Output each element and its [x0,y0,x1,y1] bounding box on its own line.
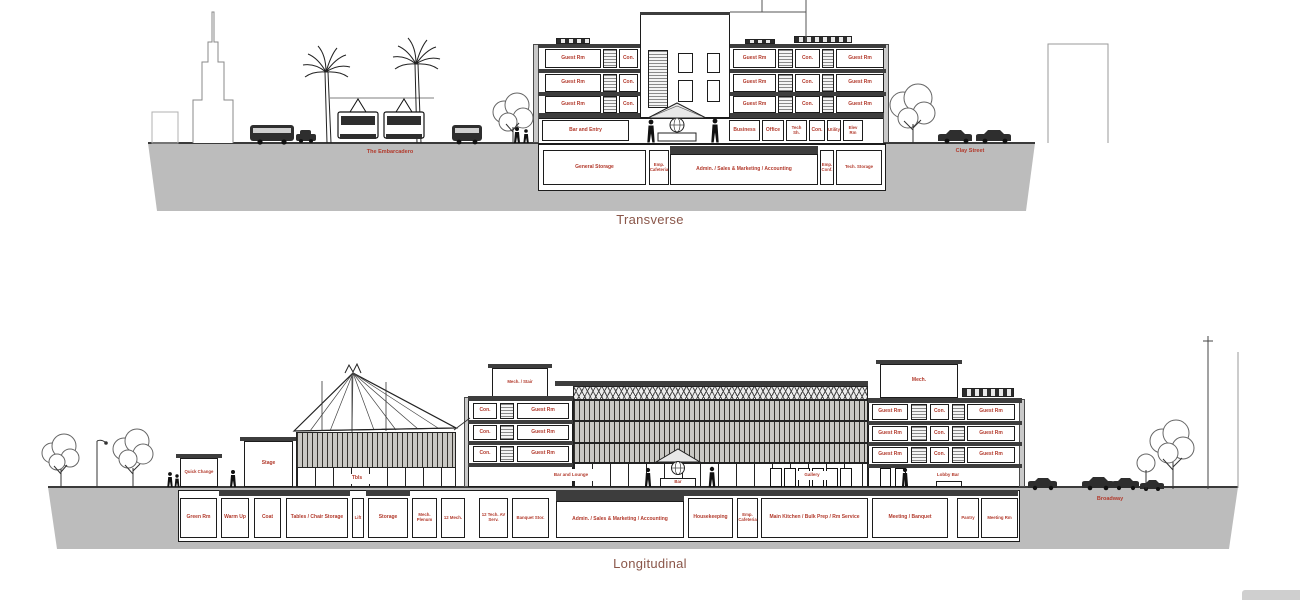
t-rw-slab2 [730,69,886,73]
t-tower-window-2 [707,53,720,73]
l-rt-f3-guest-r: Guest Rm [967,404,1015,420]
l-rt-door-1 [880,468,891,487]
t-lw-f1-guest: Guest Rm [545,96,601,113]
t-rw-f1-guest-r: Guest Rm [836,96,884,113]
l-rt-door-2 [895,468,906,487]
l-atrium-floorline-1 [573,442,868,444]
room-12-tech-av: 12 Tech. AV Serv. [479,498,508,538]
l-gallery-door-6 [840,468,852,487]
room-emp-cafeteria-t: Emp. Cafeteria [649,150,669,185]
tree-icon [1137,454,1155,489]
room-12-mech: 12 Mech. [441,498,465,538]
room-tables-chair-storage: Tables / Chair Storage [286,498,348,538]
t-tower-window-3 [678,80,693,102]
t-rw-f1-shaft-r [822,96,834,113]
room-warm-up: Warm Up [221,498,249,538]
l-rt-f1-con: Con. [930,447,949,463]
t-lw-f3-shaft [603,49,617,68]
l-lt-slab1 [468,441,573,445]
t-rw-f2-shaft-l [778,74,793,92]
l-lt-parapet [468,396,573,401]
palm-tree-icon [393,38,440,143]
l-rt-f2-guest-r: Guest Rm [967,426,1015,441]
t-tower-parapet [640,12,730,15]
t-rw-f1-shaft-l [778,96,793,113]
t-lw-f1-shaft [603,96,617,113]
l-rt-f1-shaft-l [911,447,927,463]
l-rt-f1-shaft-r [952,447,965,463]
t-lw-f2-guest: Guest Rm [545,74,601,92]
adjacent-building-icon [1048,44,1108,143]
room-utility: Utility [827,120,841,141]
room-main-kitchen: Main Kitchen / Bulk Prep / Rm Service [761,498,868,538]
l-rt-roof-mech [962,388,1014,397]
t-tower-window-1 [678,53,693,73]
room-emp-conf: Emp. Conf. [820,150,834,185]
room-green-rm: Green Rm [180,498,217,538]
l-rt-f2-shaft-l [911,426,927,441]
t-lw-f2-con: Con. [619,74,638,92]
room-emp-cafeteria-l: Emp. Cafeteria [737,498,758,538]
l-rt-slab1 [868,442,1022,446]
t-rw-f2-guest-r: Guest Rm [836,74,884,92]
room-elev-rm: Elev Rm [843,120,863,141]
l-rt-f2-con: Con. [930,426,949,441]
l-lt-f3-shaft [500,403,514,419]
t-lw-slab2 [538,69,640,73]
room-mech-plenum: Mech. Plenum [412,498,437,538]
room-business: Business [729,120,760,141]
t-rw-f2-con: Con. [795,74,820,92]
l-rt-f3-shaft-l [911,404,927,420]
l-gallery-door-1 [770,468,782,487]
t-lw-f1-con: Con. [619,96,638,113]
l-rt-f2-shaft-r [952,426,965,441]
t-lw-f2-shaft [603,74,617,92]
street-label-broadway: Broadway [1078,495,1142,503]
room-lift: Lift [352,498,364,538]
t-rw-f3-shaft-l [778,49,793,68]
l-rt-parapet [868,398,1022,403]
t-tower-window-4 [707,80,720,102]
tree-icon [1150,420,1194,489]
t-rw-roof-mech2 [794,36,852,43]
t-lw-roof [538,44,640,48]
utility-pole-icon [1203,336,1213,489]
l-lt-f2-shaft [500,425,514,440]
room-housekeeping: Housekeeping [688,498,733,538]
tree-icon [42,434,79,487]
pedestrian-icon [514,127,529,143]
l-rt-f3-con: Con. [930,404,949,420]
l-rt-f3-shaft-r [952,404,965,420]
t-rw-f3-guest-l: Guest Rm [733,49,776,68]
l-lt-f1-shaft [500,446,514,462]
room-con-ground: Con. [809,120,825,141]
l-tbls-label: Tbls [342,474,372,484]
l-gallery-door-2 [784,468,796,487]
street-label-embarcadero: The Embarcadero [338,148,442,156]
l-rt-f2-guest-l: Guest Rm [872,426,908,441]
l-gallery-label: Gallery [797,471,827,480]
sheet-corner-artifact [1242,590,1300,600]
l-lt-f3-guest: Guest Rm [517,403,569,419]
room-office: Office [762,120,784,141]
l-lobby-bar-counter [936,481,962,487]
t-rw-f2-guest-l: Guest Rm [733,74,776,92]
tree-icon [493,93,533,143]
l-bar-label: Bar [660,479,696,486]
street-light-icon [97,440,107,487]
room-coat: Coat [254,498,281,538]
room-banquet-stor: Banquet Stor. [512,498,549,538]
l-rt-f3-guest-l: Guest Rm [872,404,908,420]
room-bar-and-entry: Bar and Entry [542,120,629,141]
room-mech: Mech. [880,364,958,398]
room-tech-sh: Tech Sh. [786,120,807,141]
room-quick-change: Quick Change [180,458,218,487]
room-meeting-rm: Meeting Rm [981,498,1018,538]
street-label-clay: Clay Street [928,147,1012,155]
l-slab-left2 [366,490,410,496]
t-rw-f1-guest-l: Guest Rm [733,96,776,113]
t-rw-f1-con: Con. [795,96,820,113]
t-lw-roof-mech [556,38,590,44]
t-rw-f3-shaft-r [822,49,834,68]
t-rw-f2-shaft-r [822,74,834,92]
l-lt-slab0 [468,463,573,467]
l-tent-glazing [296,432,456,468]
t-rw-roof-mech1 [745,39,775,44]
room-admin-t: Admin. / Sales & Marketing / Accounting [670,154,818,185]
room-tech-storage: Tech. Storage [836,150,882,185]
l-rt-slab2 [868,421,1022,425]
l-atrium-glass [573,400,868,463]
t-lw-f3-guest: Guest Rm [545,49,601,68]
l-lt-f3-con: Con. [473,403,497,419]
l-lt-f1-con: Con. [473,446,497,462]
room-stage: Stage [244,441,293,487]
transverse-title: Transverse [590,212,710,227]
l-admin-crawlspace [556,492,684,501]
l-rt-slab0 [868,464,1022,468]
tram-icon [384,99,424,139]
tree-icon [113,429,153,487]
room-storage: Storage [368,498,408,538]
t-lw-f3-con: Con. [619,49,638,68]
room-meeting-banquet: Meeting / Banquet [872,498,948,538]
palm-tree-icon [303,46,350,143]
tent-roof-icon [294,364,470,432]
longitudinal-title: Longitudinal [590,556,710,571]
t-tower-stair-shaft [648,50,668,108]
l-gallery-door-5 [826,468,838,487]
tram-icon [338,99,378,139]
l-slab-left1 [219,490,350,496]
t-basement-crawlspace [670,146,818,154]
t-rw-f3-guest-r: Guest Rm [836,49,884,68]
l-rt-f1-guest-r: Guest Rm [967,447,1015,463]
tree-icon [890,84,935,143]
room-admin-l: Admin. / Sales & Marketing / Accounting [556,501,684,538]
skyline-tower-icon [152,12,233,143]
l-lt-f2-guest: Guest Rm [517,425,569,440]
t-entry-bar-label: Bar [663,134,691,141]
l-atrium-floorline-2 [573,420,868,422]
l-lt-f2-con: Con. [473,425,497,440]
l-rt-f1-guest-l: Guest Rm [872,447,908,463]
l-lt-slab2 [468,420,573,424]
l-bar-lounge-label: Bar and Lounge [548,469,594,481]
l-lt-f1-guest: Guest Rm [517,446,569,462]
l-tent-colonnade [296,468,456,487]
room-pantry: Pantry [957,498,979,538]
t-rw-f3-con: Con. [795,49,820,68]
room-mech-stair: Mech. / Stair [492,368,548,397]
l-atrium-truss [573,386,868,400]
t-rw-roof [730,44,886,48]
l-lobby-bar-label: Lobby Bar [926,471,970,480]
room-general-storage: General Storage [543,150,646,185]
section-drawing-sheet: The Embarcadero Clay Street General Stor… [0,0,1300,600]
